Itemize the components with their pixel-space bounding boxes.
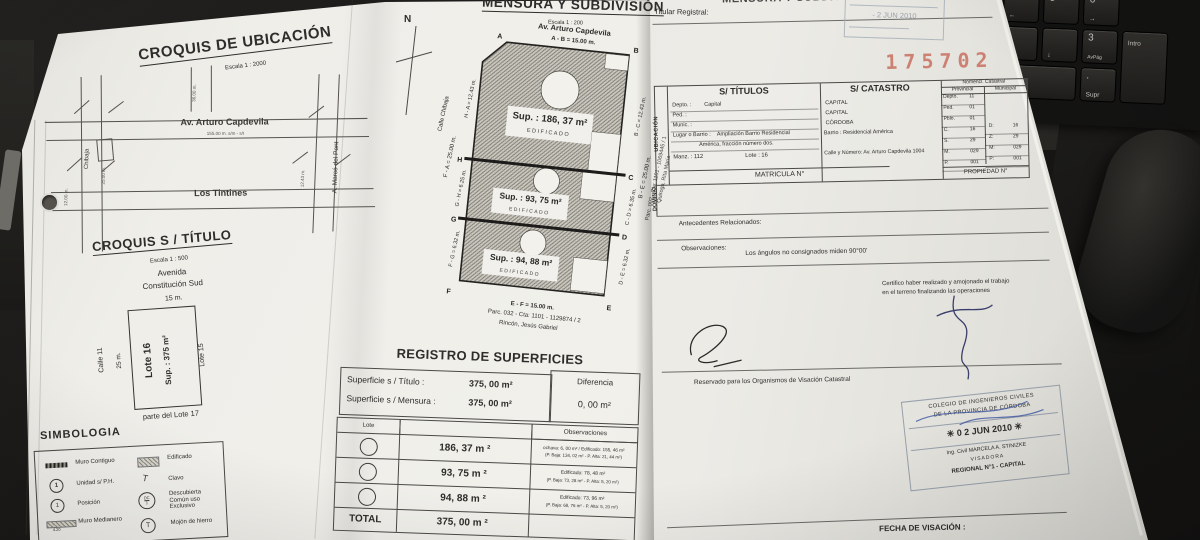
registro-table: Lote Observaciones 186, 37 m ² ochava: 6… (333, 417, 639, 540)
sup-titulo-value: 375, 00 m² (469, 379, 513, 390)
dim-label: G - H = 6.25 m. (454, 169, 468, 208)
antecedentes-label: Antecedentes Relacionados: (679, 219, 762, 228)
dim-label: E - F = 15.00 m. (510, 301, 554, 312)
legend-label: Muro Medianero (78, 517, 122, 526)
point-label: F (446, 288, 452, 295)
legend-label: Descubierta Común uso Exclusivo (169, 488, 222, 510)
row-obs2: (P. Baja: 134, 02 m² - P. Alta: 21, 44 m… (530, 453, 636, 462)
street-label: A. Marcó del Pont (331, 141, 340, 193)
row-value: Capital (704, 101, 721, 107)
prov-label: Ped. (943, 106, 953, 112)
prov-label: S. (944, 139, 949, 145)
section-ubicacion-label: UBICACIÓN (653, 116, 660, 152)
row-value: América, fracción número dos. (699, 140, 774, 148)
cat-value: Calle y Número: Av. Arturo Capdevila 100… (824, 149, 924, 157)
certifico-line1: Certifico haber realizado y amojonado el… (882, 278, 1010, 287)
observaciones-label: Observaciones: (681, 244, 726, 252)
key-sublabel: Intro (1128, 40, 1141, 48)
cat-value: CÓRDOBA (826, 120, 854, 127)
legend-label: Clavo (168, 475, 184, 482)
dim-label: 12.00 m. (63, 188, 69, 206)
numpad-key-intro: Intro (1119, 31, 1168, 105)
section-dominio-label: DOMINIO (652, 187, 659, 211)
prov-label: Depto. (943, 95, 958, 101)
row-sup: 94, 88 m ² (397, 491, 529, 507)
dim-label: 25.00 m. (101, 167, 107, 185)
row-label: Depto. : (672, 102, 691, 108)
cat-value: Barrio : Residencial América (824, 129, 893, 136)
prov-value: 29 (970, 138, 976, 144)
row-sup: 93, 75 m ² (398, 466, 530, 482)
simbologia-box: Muro Contiguo 1 Unidad s/ P.H. 1 Posició… (34, 441, 229, 540)
fecha-visacion-label: FECHA DE VISACIÓN : (879, 523, 966, 534)
reception-stamp-date: - 2 JUN 2010 (845, 10, 943, 21)
sup-mensura-value: 375, 00 m² (468, 398, 512, 409)
diferencia-value: 0, 00 m² (550, 399, 638, 412)
street-dim: 155.00 m. s/m - s/t (207, 131, 245, 136)
dim-label: 36.00 m. (191, 84, 197, 102)
croquis-titulo-sketch: Avenida Constitución Sud 15 m. Calle 11 … (96, 256, 282, 433)
registro-diferencia-box: Diferencia 0, 00 m² (549, 370, 641, 425)
sup-titulo-label: Superficie s / Título : (347, 375, 425, 387)
point-label: H (457, 157, 463, 164)
desk-photo: 4 ← 5 6 → Fin ↓ 3 AvPág Intro 0 Ins . Su… (0, 0, 1200, 540)
prov-value: 001 (970, 160, 978, 166)
prov-value: 01 (969, 105, 975, 111)
point-label: G (451, 216, 458, 224)
mun-value: 29 (1013, 134, 1019, 140)
mun-value: 001 (1013, 156, 1021, 162)
antecedentes-rule-bottom (657, 232, 1049, 241)
street-label: Calle Chibaja (437, 95, 450, 132)
clavo-symbol: T (141, 474, 148, 485)
street-label: Los Tintines (194, 188, 247, 198)
prov-value: 11 (969, 94, 974, 100)
row-label: Ped. : (672, 112, 686, 118)
symbol-glyph: 1 (146, 501, 148, 505)
registro-superficies: REGISTRO DE SUPERFICIES Superficie s / T… (333, 341, 642, 540)
sup-mensura-label: Superficie s / Mensura : (346, 394, 436, 406)
dim-label: F - G = 6.32 m. (448, 230, 462, 268)
key-sublabel: Supr (1085, 91, 1099, 99)
row-label: Munic. : (673, 122, 692, 128)
header-s-catastro: S/ CATASTRO (819, 83, 941, 95)
total-value: 375, 00 m ² (396, 515, 528, 531)
cat-value: CAPITAL (825, 100, 848, 107)
key-label: 6 (1089, 0, 1095, 6)
prov-label: M. (944, 150, 950, 156)
numpad-key-6: 6 → (1083, 0, 1120, 27)
mun-label: P: (989, 157, 994, 163)
symbol-glyph: 1 (56, 503, 60, 509)
total-label: TOTAL (334, 513, 396, 526)
diferencia-label: Diferencia (551, 377, 639, 389)
observaciones-rule (658, 260, 1050, 269)
lote-circle (359, 438, 378, 457)
legend-label: Edificado (167, 454, 192, 462)
mun-value: 16 (1013, 123, 1019, 129)
header-municipal: Municipal (984, 86, 1027, 93)
street-label: Chibaja (84, 148, 91, 169)
lot-name: Lote 16 (142, 343, 155, 379)
point-label: B (633, 47, 639, 54)
dim-label: H - A = 12.43 m. (464, 78, 478, 118)
dim-label: D - E = 6.32 m. (618, 247, 632, 285)
key-sublabel: AvPág (1087, 54, 1102, 61)
row-sup: 186, 37 m ² (399, 441, 531, 457)
col-lote-header: Lote (337, 422, 399, 431)
point-label: E (606, 305, 612, 312)
point-label: C (628, 175, 634, 182)
mun-label: Z: (989, 135, 994, 141)
propiedad-label: PROPIEDAD N° (943, 165, 1029, 176)
mun-value: 029 (1013, 145, 1021, 151)
dim-label: C - D = 6.35 m. (624, 188, 638, 226)
prov-value: 01 (970, 116, 976, 122)
dim-label: 12.43 m. (300, 170, 306, 188)
numpad-key-dot: . Supr (1079, 67, 1116, 103)
muro-medianero-symbol (46, 520, 76, 529)
reservado-label: Reservado para los Organismos de Visació… (694, 376, 850, 386)
key-label: . (1086, 70, 1089, 81)
street-label: Av. Arturo Capdevila (180, 116, 269, 127)
neighbor-label: parte del Lote 17 (121, 408, 221, 423)
titular-registral-label: Titular Registral: (654, 8, 708, 17)
symbol-glyph: 1 (55, 483, 59, 489)
colegio-stamp: COLEGIO DE INGENIEROS CIVILES DE LA PROV… (901, 385, 1070, 492)
mensura-plan: Sup. : 186, 37 m² EDIFICADO Sup. : 93, 7… (402, 16, 670, 332)
registro-resumen-box: Superficie s / Título : 375, 00 m² Super… (339, 367, 553, 422)
croquis-ubicacion-map: Av. Arturo Capdevila 155.00 m. s/m - s/t… (41, 52, 377, 255)
prov-label: P. (944, 161, 948, 167)
unidad-ph-symbol: 1 (49, 479, 64, 494)
file-number-stamp: 175702 (885, 49, 994, 73)
visador-signature (924, 289, 1006, 386)
lote-circle (359, 463, 378, 482)
prov-value: 16 (970, 127, 976, 133)
neighbor-label: Rincón, Jesús Gabriel (499, 320, 558, 332)
prov-label: Pblo. (944, 117, 956, 123)
mun-label: D: (989, 124, 994, 130)
posicion-symbol: 1 (50, 499, 65, 514)
row-value: Lote : 16 (745, 153, 768, 160)
cadastral-table: UBICACIÓN S/ TÍTULOS Depto. : Capital Pe… (654, 78, 1030, 186)
dim-label: A - B = 15.00 m. (551, 36, 596, 47)
mojon-hierro-symbol: T (140, 518, 156, 534)
dim-label: 25 m. (115, 352, 123, 369)
numpad-key-3: 3 AvPág (1081, 29, 1118, 65)
point-label: A (497, 33, 503, 40)
legend-label: Posición (77, 500, 100, 508)
surveyor-signature (683, 316, 764, 378)
street-label: Calle 11 (97, 347, 106, 373)
legend-label: Muro Contiguo (75, 458, 115, 467)
reception-stamp: - 2 JUN 2010 (844, 0, 945, 40)
row-label: Lugar o Barrio : (673, 132, 711, 139)
mun-label: M: (989, 146, 995, 152)
key-sublabel: → (1089, 15, 1096, 22)
col-observaciones-header: Observaciones (532, 428, 638, 439)
pen-scribble (902, 386, 1063, 443)
edificado-symbol (137, 456, 159, 467)
dim-label: F - A = 25.00 m. (443, 135, 458, 178)
row-obs2: (P. Baja: 73, 28 m² - P. Alta: 5, 20 m²) (530, 478, 636, 487)
legend-label: Unidad s/ P.H. (76, 479, 114, 488)
prov-value: 029 (970, 149, 978, 155)
muro-contiguo-symbol (45, 462, 67, 468)
symbol-note: 4.20 (53, 528, 61, 533)
neighbor-label: Lote 15 (198, 343, 207, 367)
cat-value: CAPITAL (825, 110, 848, 117)
dim-label: B - C = 12.43 m. (634, 96, 648, 137)
row-obs2: (P. Baja: 68, 76 m² - P. Alta: 5, 20 m²) (529, 502, 635, 511)
row-value: Ampliación Barrio Residencial (717, 130, 790, 138)
descubierta-comun-symbol: DC 1 (138, 492, 156, 510)
right-page-content: MENSURA Y SUBDIVISIÓN Titular Registral:… (648, 0, 1079, 540)
prov-label: C. (944, 128, 949, 134)
legend-label: Mojón de hierro (170, 518, 212, 527)
symbol-glyph: T (146, 522, 151, 529)
observaciones-text: Los ángulos no consignados miden 90°00' (745, 247, 867, 257)
point-label: D (622, 234, 628, 241)
key-label: 3 (1088, 32, 1094, 43)
header-s-titulos: S/ TÍTULOS (668, 85, 820, 98)
lote-circle (358, 488, 377, 507)
row-label: Manz. : 112 (673, 154, 703, 161)
street-label: Av. Arturo Capdevila (538, 21, 612, 38)
fecha-rule (667, 512, 1067, 528)
